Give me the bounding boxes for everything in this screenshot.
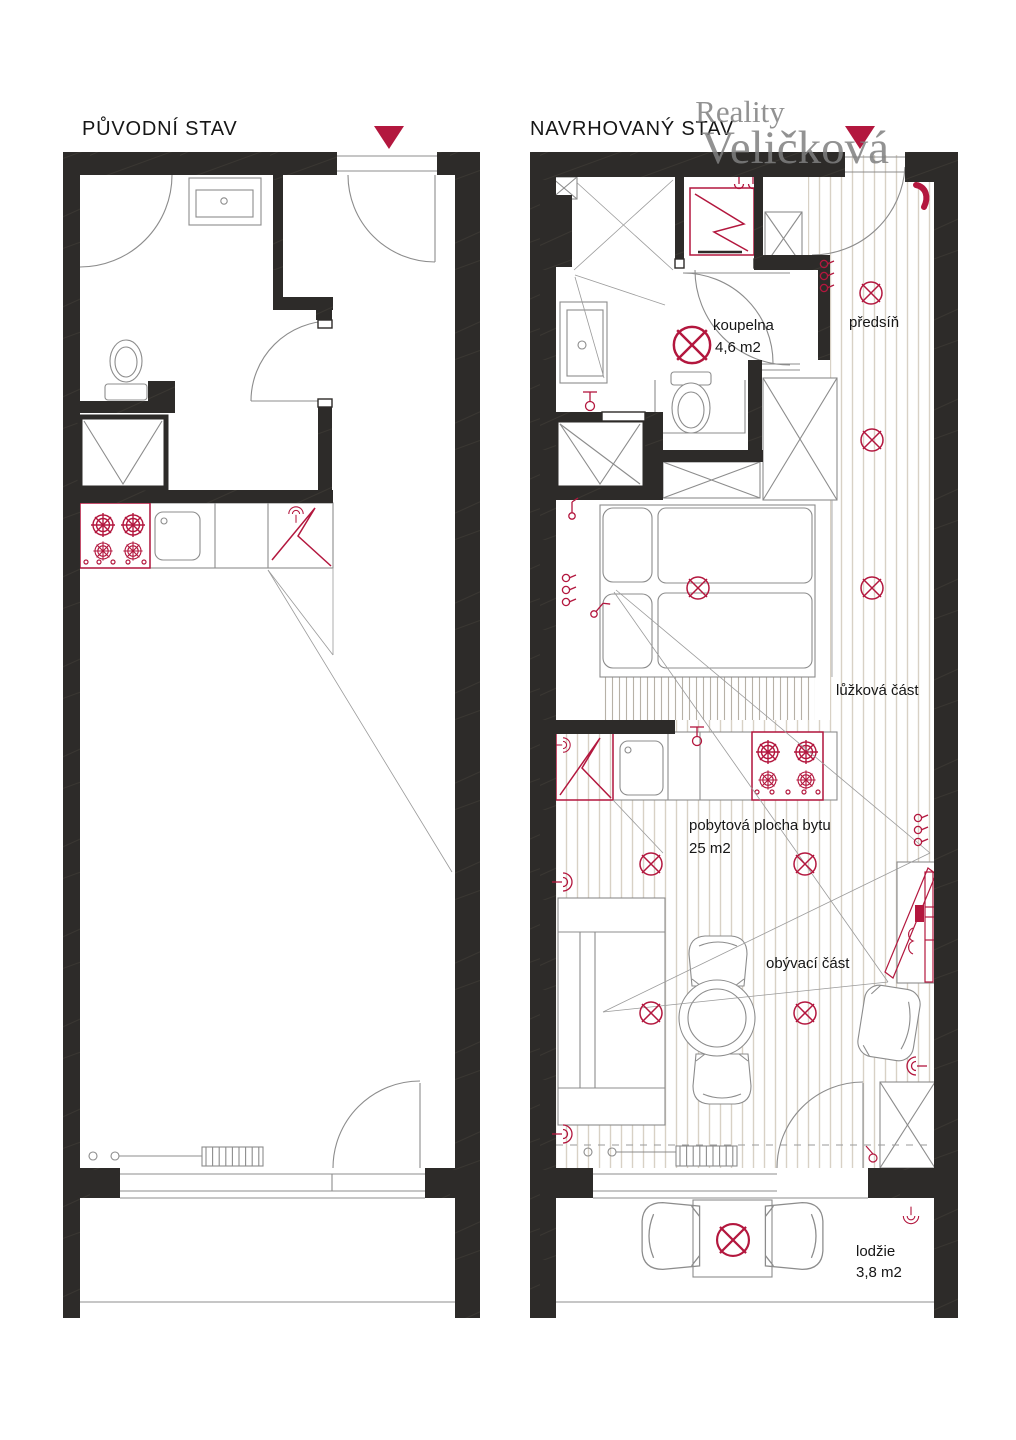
label-living-space-area: 25 m2 bbox=[689, 840, 731, 857]
watermark-line2: Veličková bbox=[701, 122, 889, 174]
wc-door-arc bbox=[251, 321, 331, 401]
ceiling-light-icon bbox=[674, 327, 710, 363]
label-bathroom: koupelna bbox=[713, 317, 775, 334]
label-hallway: předsíň bbox=[849, 314, 899, 331]
toilet-icon bbox=[671, 372, 711, 433]
toilet-icon bbox=[105, 340, 147, 400]
floorplan-page: PŮVODNÍ STAV bbox=[0, 0, 1016, 1440]
top-window bbox=[337, 156, 437, 171]
kitchen-counter bbox=[80, 503, 333, 568]
sink-icon bbox=[155, 512, 200, 560]
watermark: Reality Veličková bbox=[695, 94, 889, 174]
plan-original-title: PŮVODNÍ STAV bbox=[82, 116, 238, 140]
bottom-window bbox=[593, 1174, 868, 1198]
label-living-area: obývací část bbox=[766, 955, 850, 972]
label-living-space: pobytová plocha bytu bbox=[689, 817, 831, 834]
plan-proposed: NAVRHOVANÝ STAV koupelna 4,6 m2 předsíň … bbox=[530, 117, 958, 1318]
floorplan-canvas: PŮVODNÍ STAV bbox=[0, 0, 1016, 1440]
double-bed-icon bbox=[600, 505, 815, 677]
vanity-icon bbox=[560, 277, 607, 383]
sink-icon bbox=[620, 741, 663, 795]
label-loggia: lodžie bbox=[856, 1243, 895, 1260]
balcony-door-arc bbox=[333, 1081, 420, 1168]
label-loggia-area: 3,8 m2 bbox=[856, 1264, 902, 1281]
label-bathroom-area: 4,6 m2 bbox=[715, 339, 761, 356]
armchair-icon bbox=[856, 983, 923, 1063]
faucet-icon bbox=[583, 392, 597, 411]
bathroom-door-arc bbox=[80, 175, 172, 267]
bottom-window bbox=[120, 1174, 425, 1198]
washing-machine-icon bbox=[690, 175, 758, 255]
entrance-door-arc bbox=[348, 175, 435, 262]
washbasin-icon bbox=[189, 178, 261, 225]
walls-original bbox=[63, 152, 480, 1318]
ceiling-light-icon bbox=[717, 1224, 749, 1256]
radiator-icon bbox=[89, 1147, 263, 1166]
label-bed-area: lůžková část bbox=[836, 682, 919, 699]
plan-original: PŮVODNÍ STAV bbox=[63, 116, 480, 1318]
entrance-marker-icon bbox=[374, 126, 404, 149]
bed-rug bbox=[600, 677, 815, 720]
